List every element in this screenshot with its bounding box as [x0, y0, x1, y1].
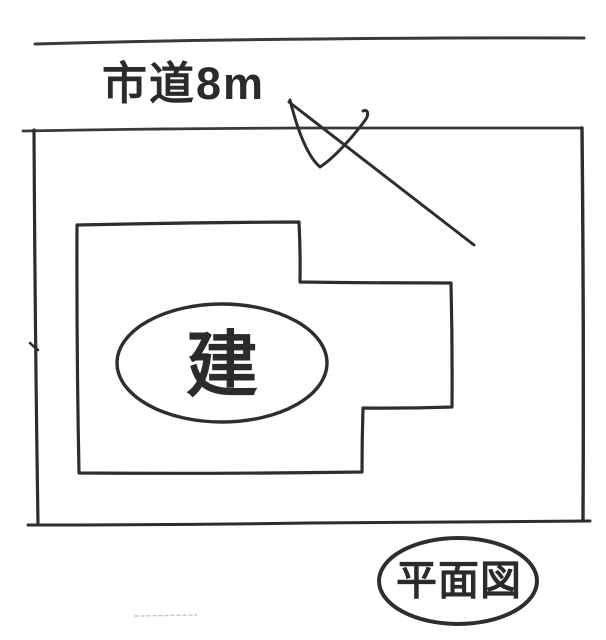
- building-label: 建: [186, 330, 258, 402]
- caption-label: 平面図: [396, 561, 522, 602]
- road-edge-line: [35, 38, 584, 44]
- site-boundary-left: [34, 130, 38, 524]
- scan-artifact-line: [135, 615, 197, 616]
- site-plan-drawing: [0, 0, 606, 640]
- road-width-label: 市道8m: [102, 61, 265, 106]
- site-boundary-bottom: [28, 521, 590, 525]
- building-outline: [77, 222, 452, 473]
- scanned-site-plan-sheet: 市道8m 建 平面図: [0, 0, 606, 640]
- site-boundary-top: [23, 128, 582, 131]
- site-boundary-right: [582, 128, 583, 520]
- leader-diagonal-stroke: [289, 102, 474, 245]
